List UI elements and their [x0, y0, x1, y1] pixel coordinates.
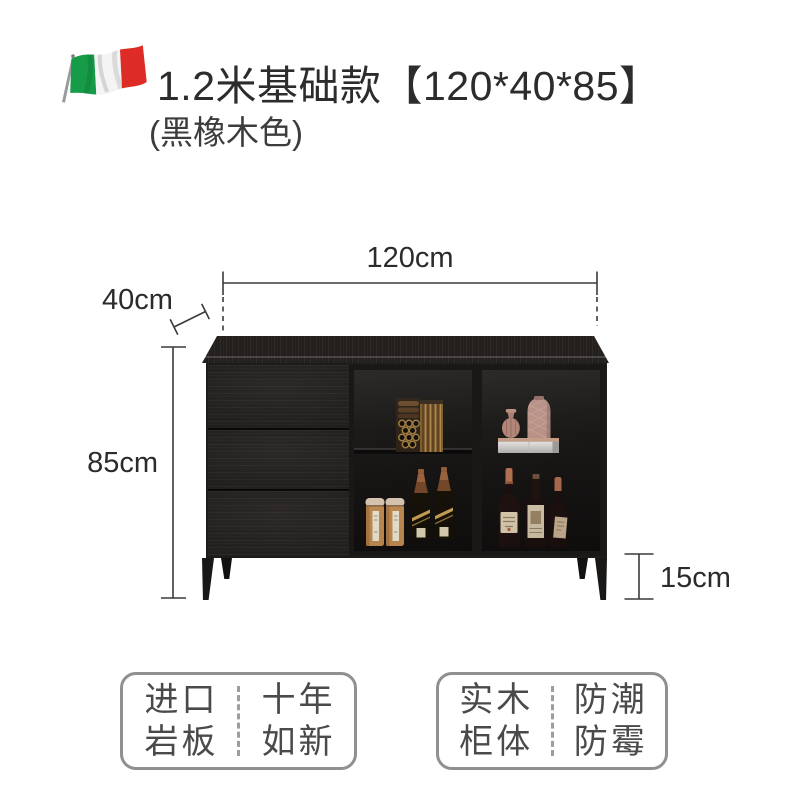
drawer-1	[208, 365, 349, 428]
drawer-3	[208, 491, 349, 556]
dim-height-label: 85cm	[66, 448, 158, 480]
badge-1-right-text: 十年 如新	[240, 675, 354, 767]
leg-front-left	[202, 558, 214, 600]
product-spec-image: 1.2米基础款【120*40*85】 (黑橡木色) 120cm 40cm 85c…	[0, 0, 800, 800]
product-subtitle: (黑橡木色)	[149, 106, 303, 154]
drawer-stack	[208, 365, 349, 556]
badge-1-left-text: 进口 岩板	[123, 675, 237, 767]
leg-back-left	[221, 558, 232, 579]
feature-badge-2: 实木 柜体 防潮 防霉	[436, 672, 668, 770]
dim-width-label: 120cm	[350, 243, 470, 275]
dim-depth-line	[174, 312, 206, 328]
glass-door-right	[477, 365, 605, 556]
glass-door-left	[349, 365, 477, 556]
leg-front-right	[595, 558, 607, 600]
leg-back-right	[577, 558, 588, 579]
badge-2-left-text: 实木 柜体	[439, 675, 551, 767]
cabinet-top-edge-highlight	[205, 356, 606, 358]
cabinet-top-board	[202, 336, 609, 363]
badge-2-right-text: 防潮 防霉	[554, 675, 666, 767]
dim-leg-height-label: 15cm	[660, 563, 731, 595]
feature-badge-1: 进口 岩板 十年 如新	[120, 672, 357, 770]
dim-depth-label: 40cm	[102, 285, 173, 317]
product-title: 1.2米基础款【120*40*85】	[157, 52, 661, 112]
italy-flag-icon	[48, 42, 152, 106]
drawer-2	[208, 430, 349, 489]
